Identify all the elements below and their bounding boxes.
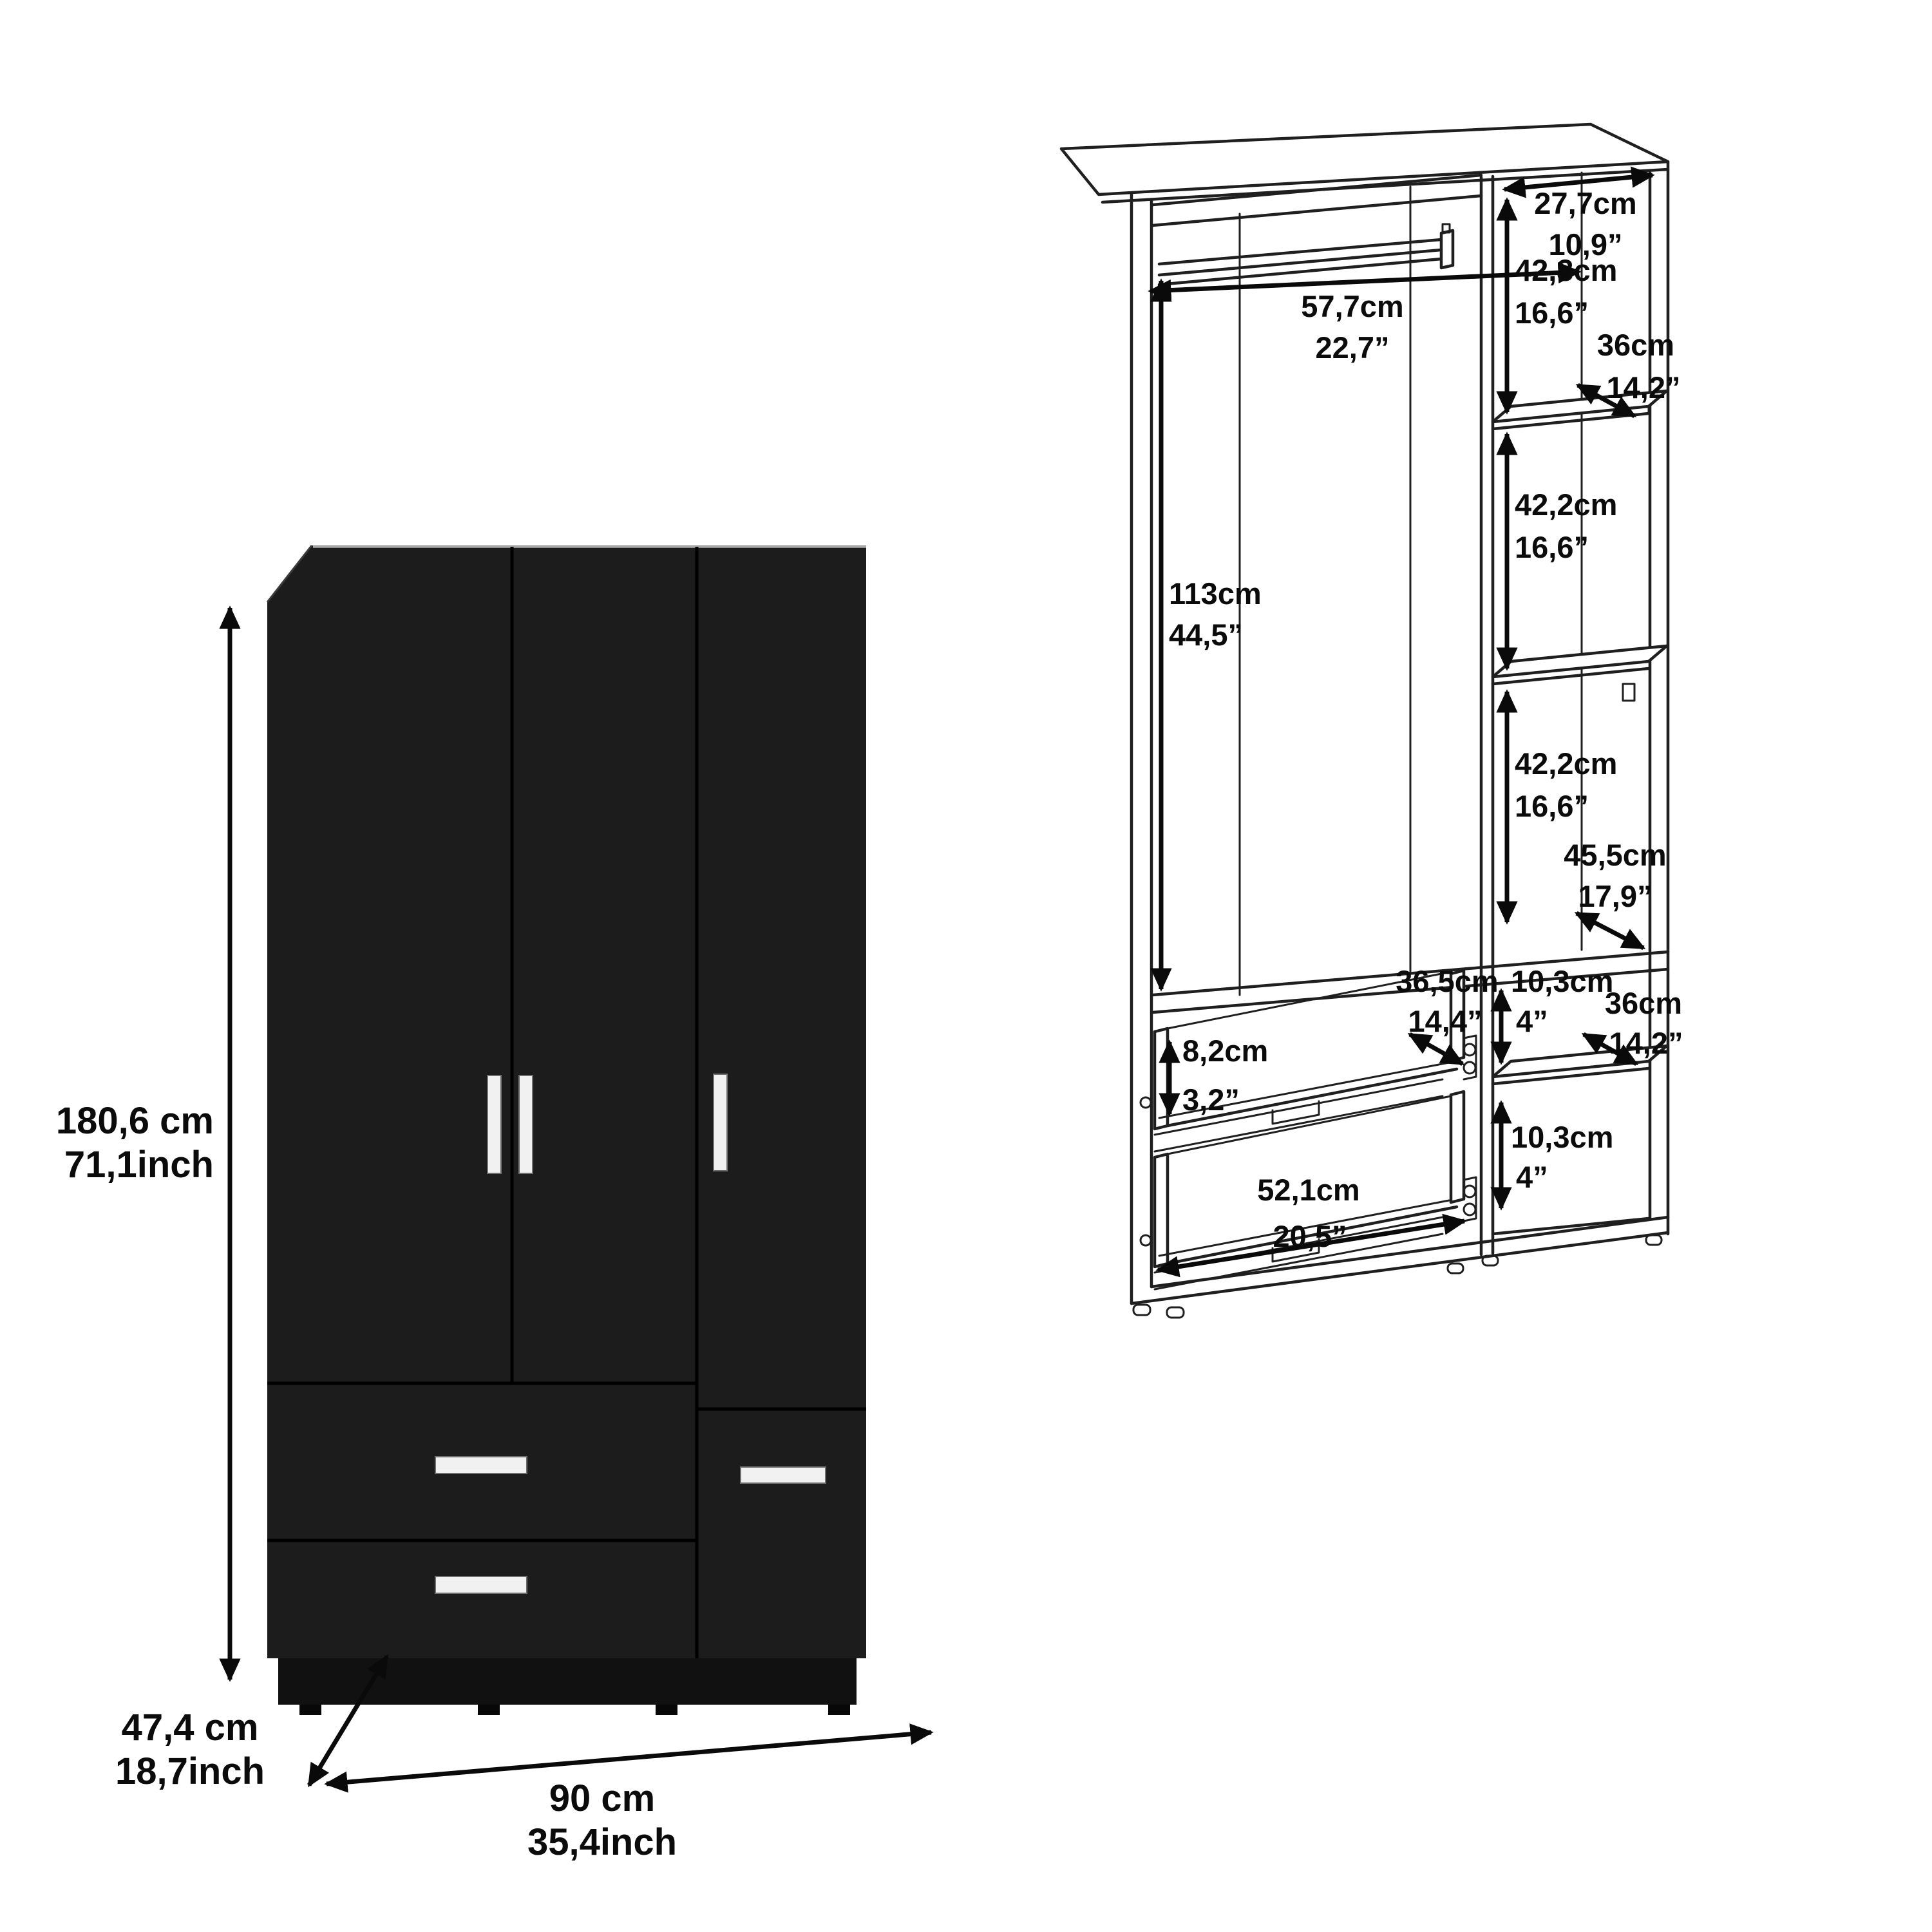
wardrobe-foot (299, 1705, 321, 1715)
door-handle-right (714, 1074, 727, 1171)
shelf-gap-mid-cm: 42,2cm (1515, 488, 1617, 522)
bottom-drawer-back (1451, 1092, 1464, 1202)
diagram-feet (1133, 1235, 1662, 1318)
drawer-width-inch: 20,5” (1273, 1219, 1347, 1253)
wardrobe-plinth (278, 1658, 857, 1705)
base-depth-inch: 17,9” (1578, 879, 1653, 913)
top-shelf-width-cm: 27,7cm (1534, 186, 1636, 220)
depth-label-cm: 47,4 cm (122, 1707, 259, 1748)
hanging-rod (1159, 224, 1453, 285)
diagram-canvas: 180,6 cm 71,1inch 47,4 cm 18,7inch 90 cm… (0, 0, 1932, 1932)
shelf-depth-lower-cm: 36cm (1605, 986, 1682, 1020)
rod-clearance-inch: 22,7” (1316, 330, 1390, 365)
shelf-gap-top-cm: 42,3cm (1515, 253, 1617, 287)
door-handle-middle (519, 1075, 533, 1173)
height-label-cm: 180,6 cm (56, 1100, 214, 1142)
base-depth-arrow (1577, 913, 1643, 948)
door-handle-left (488, 1075, 501, 1173)
drawer-width-cm: 52,1cm (1257, 1173, 1359, 1207)
drawer-side-height-cm: 8,2cm (1182, 1034, 1268, 1068)
top-drawer-side (1155, 1028, 1168, 1129)
wardrobe-body (267, 545, 866, 1658)
rod-bracket (1441, 231, 1453, 268)
shelf-depth-upper-inch: 14,2” (1607, 370, 1681, 404)
niche-lower-cm: 10,3cm (1511, 1120, 1613, 1154)
shelf-gap-top-inch: 16,6” (1515, 296, 1589, 330)
shelf-depth-upper-cm: 36cm (1597, 328, 1674, 362)
lower-door-handle (741, 1467, 826, 1483)
rod-clearance-cm: 57,7cm (1301, 289, 1403, 323)
width-dimension-arrow (327, 1732, 931, 1784)
wardrobe-foot (656, 1705, 677, 1715)
niche-upper-cm: 10,3cm (1511, 964, 1613, 998)
hanging-height-inch: 44,5” (1169, 618, 1243, 652)
depth-label-inch: 18,7inch (115, 1750, 265, 1792)
shelf-depth-lower-inch: 14,2” (1609, 1026, 1683, 1060)
shelf-middle (1493, 646, 1667, 701)
drawer-depth-cm: 36,5cm (1396, 964, 1498, 998)
hanging-height-cm: 113cm (1169, 576, 1262, 611)
wardrobe-foot (478, 1705, 500, 1715)
drawer-handle-bottom (435, 1577, 527, 1593)
drawer-side-height-inch: 3,2” (1182, 1083, 1240, 1117)
shelf-gap-mid-inch: 16,6” (1515, 530, 1589, 564)
shelf-gap-lower-cm: 42,2cm (1515, 746, 1617, 781)
width-label-cm: 90 cm (549, 1777, 655, 1819)
wardrobe-foot (828, 1705, 850, 1715)
height-label-inch: 71,1inch (64, 1144, 214, 1186)
wardrobe-interior-diagram: 57,7cm 22,7” 113cm 44,5” 27,7cm 10,9” 42… (1061, 124, 1683, 1318)
base-depth-cm: 45,5cm (1564, 838, 1666, 872)
width-label-inch: 35,4inch (527, 1821, 677, 1863)
bottom-edge (1132, 1233, 1668, 1303)
bottom-drawer-side (1155, 1154, 1168, 1267)
shelf-gap-lower-inch: 16,6” (1515, 789, 1589, 823)
niche-upper-inch: 4” (1516, 1004, 1548, 1038)
drawer-handle-top (435, 1457, 527, 1473)
niche-lower-inch: 4” (1516, 1160, 1548, 1194)
wardrobe-photo: 180,6 cm 71,1inch 47,4 cm 18,7inch 90 cm… (56, 545, 931, 1863)
product-dimension-image: 180,6 cm 71,1inch 47,4 cm 18,7inch 90 cm… (0, 0, 1932, 1932)
drawer-depth-inch: 14,4” (1408, 1004, 1482, 1038)
